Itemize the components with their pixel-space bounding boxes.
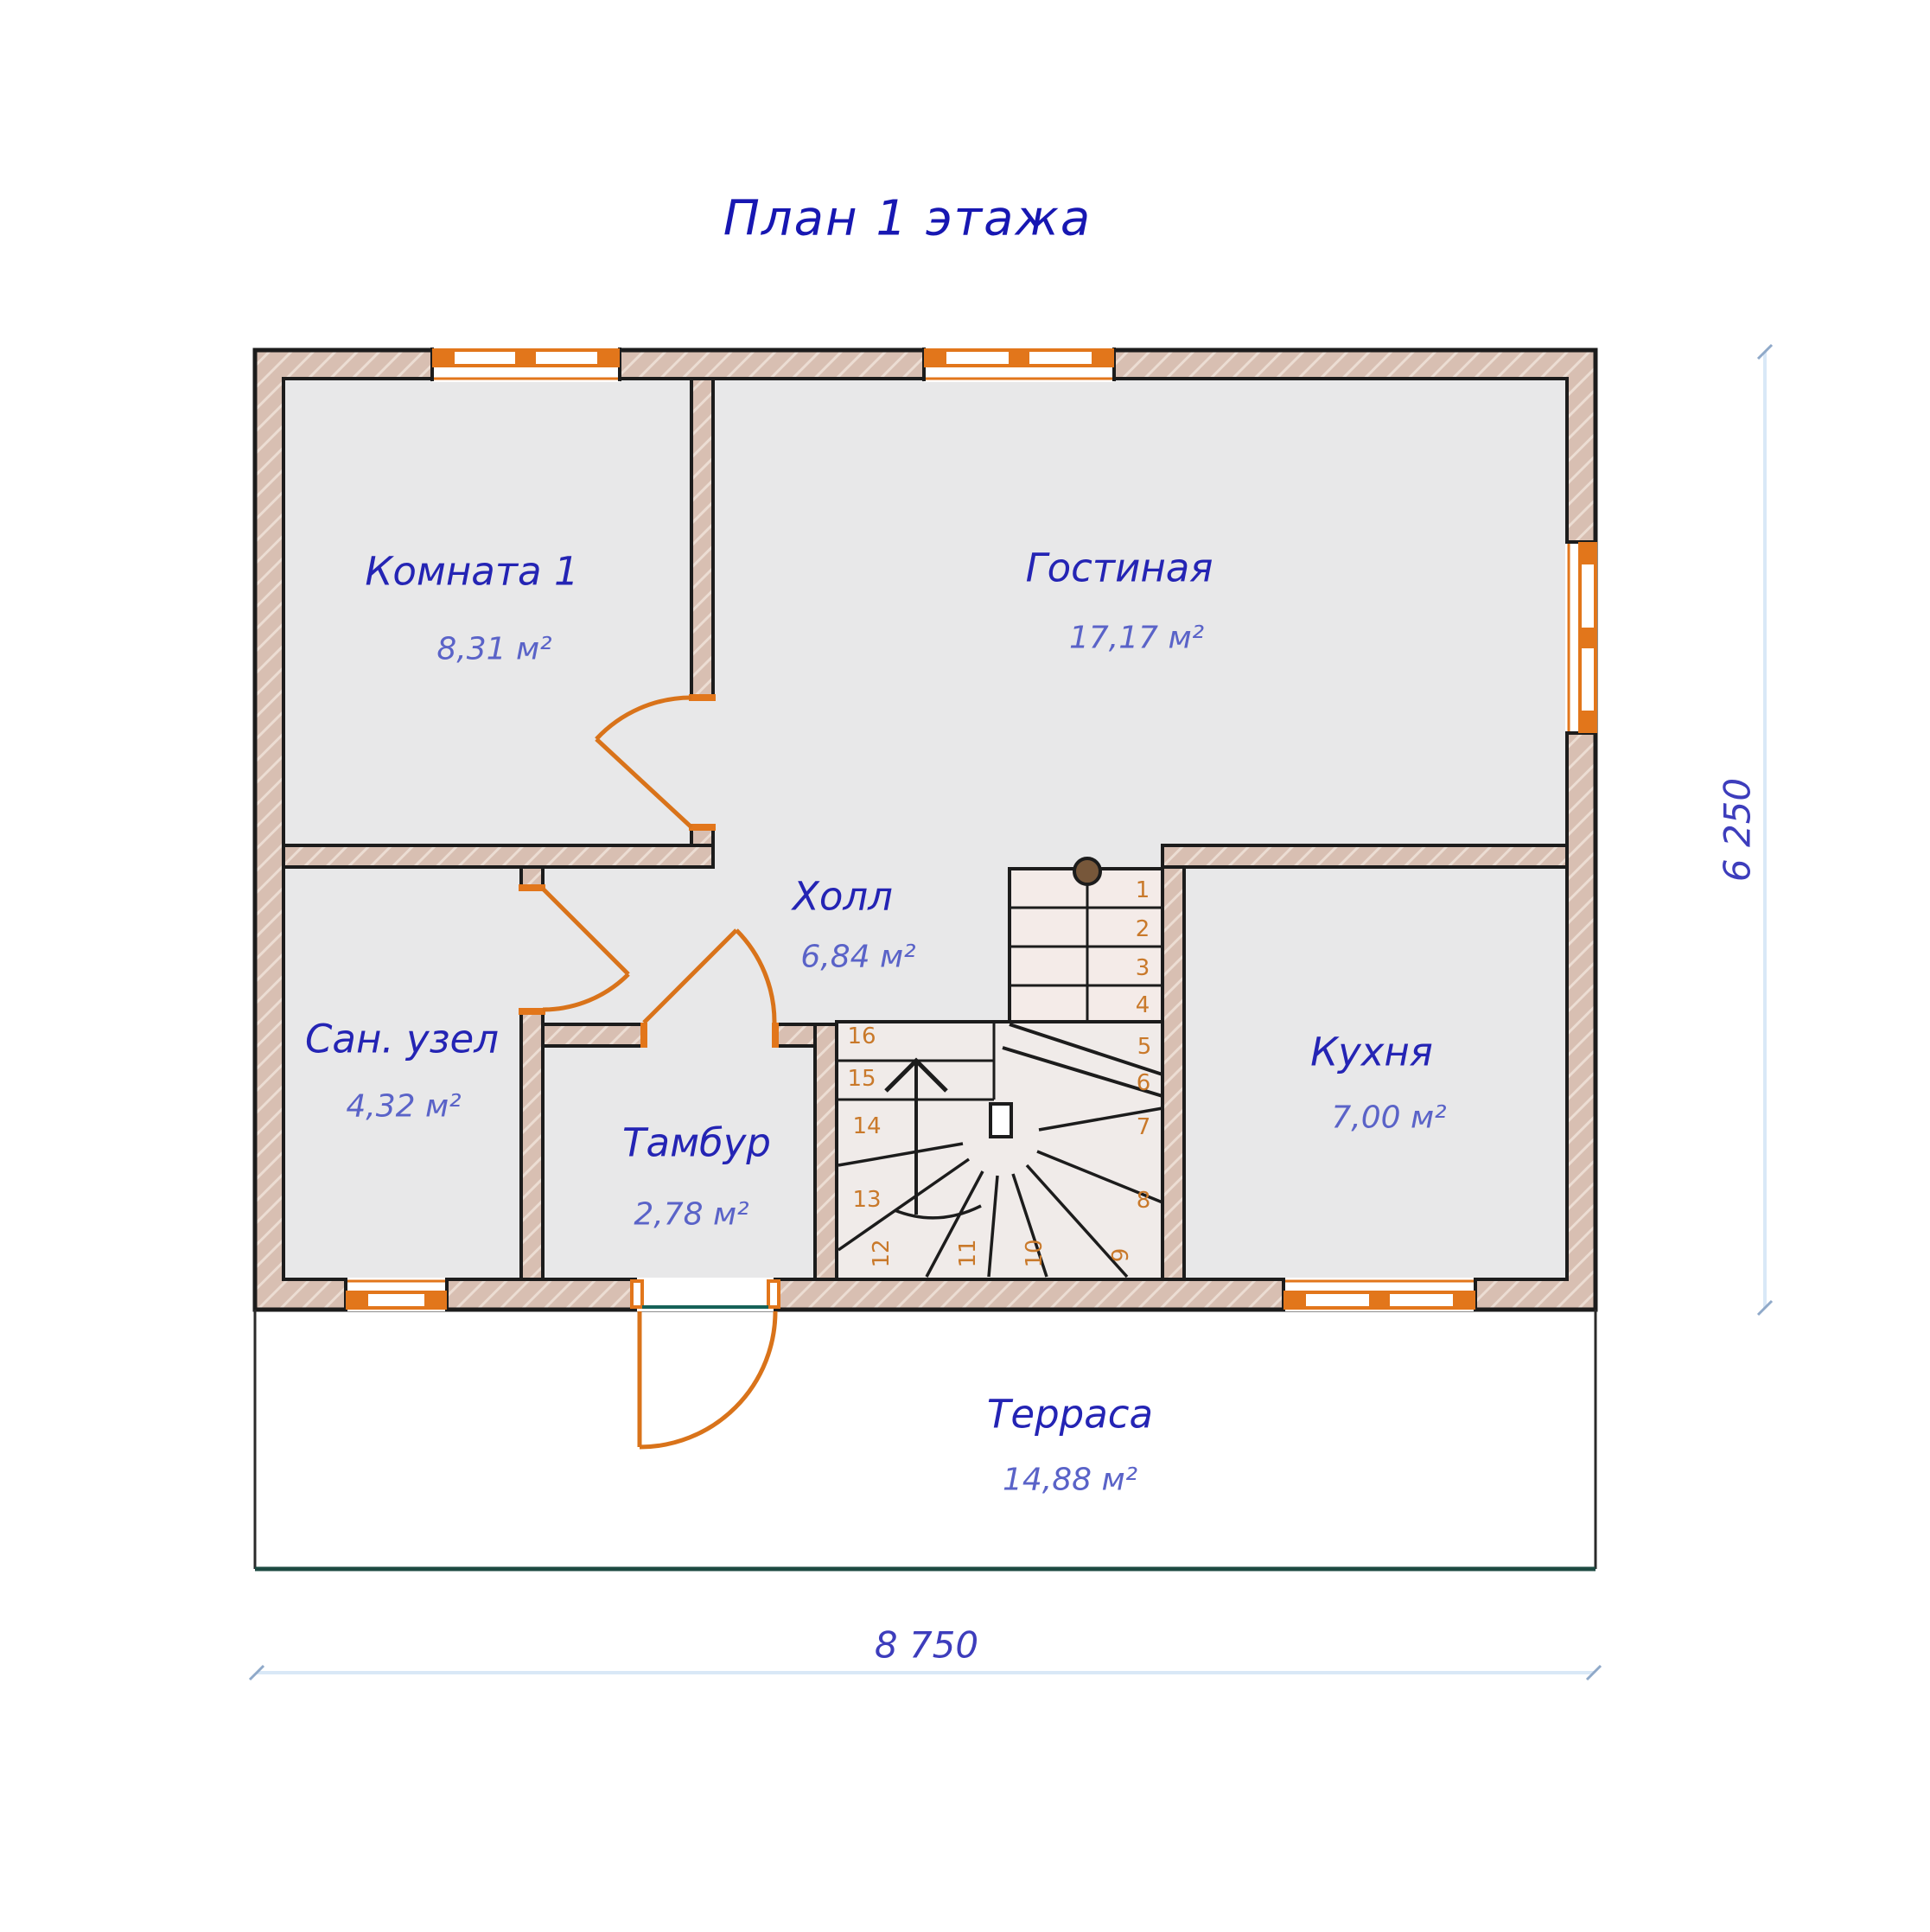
dimension-width: 8 750 — [875, 1624, 978, 1667]
stair-step-number: 8 — [1137, 1188, 1151, 1214]
stair-step-number: 16 — [847, 1023, 876, 1049]
window-kitchen-bottom — [1283, 1278, 1475, 1311]
room-label-kuhnya: Кухня — [1310, 1030, 1433, 1075]
stair-step-number: 12 — [869, 1239, 895, 1267]
room-area-kuhnya: 7,00 м² — [1331, 1100, 1446, 1136]
room-label-terrasa: Терраса — [987, 1392, 1153, 1438]
stair-step-number: 10 — [1022, 1239, 1048, 1267]
window-livingroom-top — [924, 348, 1114, 382]
stair-center-post — [990, 1104, 1011, 1137]
room-label-san-uzel: Сан. узел — [305, 1017, 499, 1062]
terrace-outline — [255, 1310, 1596, 1569]
newel-post-icon — [1074, 858, 1100, 884]
stair-step-number: 1 — [1136, 877, 1150, 903]
room-label-komnata1: Комната 1 — [365, 549, 578, 595]
stair-step-number: 14 — [852, 1113, 881, 1139]
floor-plan-page: План 1 этажа Комната 1 8,31 м² Гостиная … — [0, 0, 1930, 1932]
stair-step-number: 9 — [1108, 1248, 1134, 1263]
room-area-hall: 6,84 м² — [800, 940, 915, 975]
stair-step-number: 3 — [1136, 955, 1150, 981]
room-area-terrasa: 14,88 м² — [1003, 1463, 1137, 1498]
stair-step-number: 6 — [1137, 1070, 1151, 1096]
window-bathroom-bottom — [346, 1278, 447, 1311]
room-area-gostinaya: 17,17 м² — [1069, 621, 1204, 656]
room-label-hall: Холл — [793, 874, 893, 920]
room-area-komnata1: 8,31 м² — [436, 632, 551, 667]
stair-step-number: 13 — [852, 1187, 881, 1213]
stair-step-number: 4 — [1136, 992, 1150, 1018]
page-title: План 1 этажа — [723, 191, 1092, 247]
room-label-tambur: Тамбур — [622, 1120, 771, 1166]
window-room1-top — [432, 348, 620, 382]
stair-step-number: 15 — [847, 1066, 876, 1092]
room-area-tambur: 2,78 м² — [634, 1197, 748, 1233]
stair-step-number: 2 — [1136, 916, 1150, 942]
entry-door — [632, 1278, 779, 1447]
window-livingroom-right — [1565, 542, 1597, 733]
dimension-height: 6 250 — [1717, 778, 1759, 882]
stair-step-number: 5 — [1137, 1034, 1152, 1060]
room-label-gostinaya: Гостиная — [1026, 545, 1213, 591]
room-area-san-uzel: 4,32 м² — [346, 1089, 461, 1125]
stair-step-number: 11 — [955, 1239, 981, 1267]
stair-step-number: 7 — [1137, 1114, 1151, 1140]
